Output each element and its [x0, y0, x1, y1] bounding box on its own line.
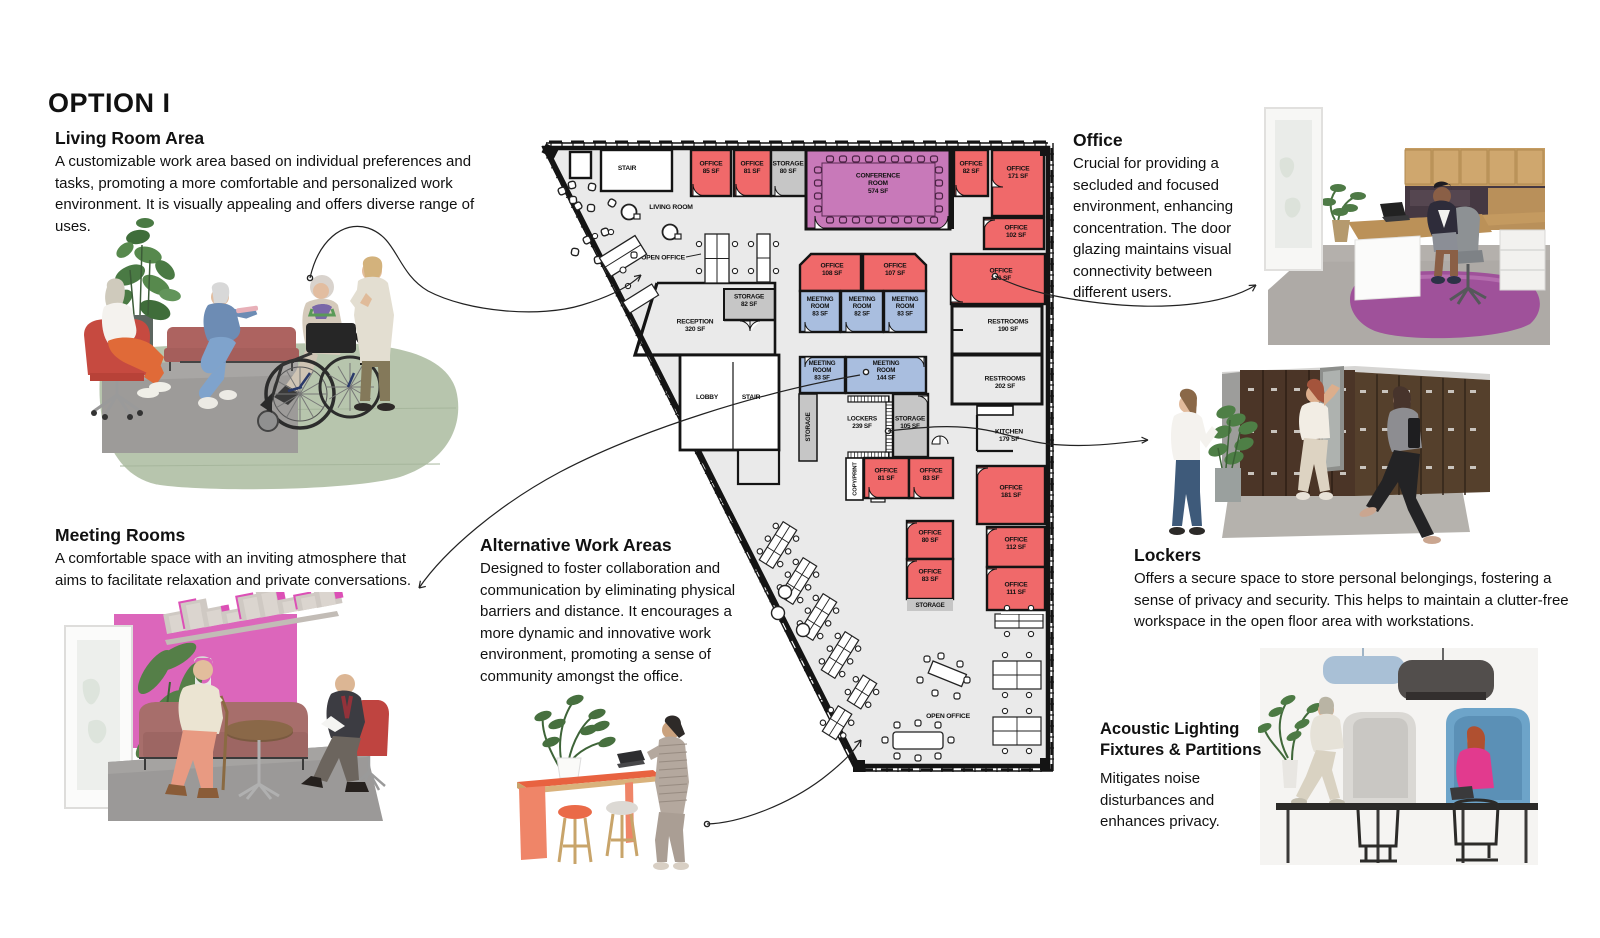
svg-text:RESTROOMS: RESTROOMS — [988, 318, 1029, 325]
svg-text:OFFICE: OFFICE — [919, 529, 943, 536]
svg-text:181 SF: 181 SF — [1001, 492, 1021, 499]
svg-text:171 SF: 171 SF — [1008, 173, 1028, 180]
svg-text:OFFICE: OFFICE — [821, 262, 845, 269]
svg-text:COPY/PRINT: COPY/PRINT — [853, 462, 859, 496]
svg-text:81 SF: 81 SF — [878, 475, 895, 482]
svg-text:202 SF: 202 SF — [995, 383, 1015, 390]
svg-text:ROOM: ROOM — [853, 303, 871, 310]
svg-text:OFFICE: OFFICE — [1005, 536, 1029, 543]
svg-text:83 SF: 83 SF — [923, 475, 940, 482]
svg-text:MEETING: MEETING — [873, 360, 900, 367]
svg-text:320 SF: 320 SF — [685, 326, 705, 333]
svg-text:179 SF: 179 SF — [999, 436, 1019, 443]
svg-text:MEETING: MEETING — [892, 296, 919, 303]
svg-text:102 SF: 102 SF — [1006, 232, 1026, 239]
svg-text:STAIR: STAIR — [742, 394, 761, 401]
svg-text:OFFICE: OFFICE — [1007, 165, 1031, 172]
svg-text:190 SF: 190 SF — [998, 326, 1018, 333]
svg-text:82 SF: 82 SF — [854, 311, 870, 318]
svg-text:MEETING: MEETING — [807, 296, 834, 303]
svg-text:85 SF: 85 SF — [703, 168, 720, 175]
svg-text:108 SF: 108 SF — [822, 270, 842, 277]
svg-text:ROOM: ROOM — [811, 303, 829, 310]
svg-text:82 SF: 82 SF — [741, 301, 757, 308]
svg-text:STORAGE: STORAGE — [772, 160, 804, 167]
svg-text:MEETING: MEETING — [809, 360, 836, 367]
svg-text:OFFICE: OFFICE — [741, 160, 765, 167]
svg-text:OPEN OFFICE: OPEN OFFICE — [926, 713, 971, 720]
svg-text:574 SF: 574 SF — [868, 188, 888, 195]
svg-text:OFFICE: OFFICE — [700, 160, 724, 167]
svg-text:STORAGE: STORAGE — [805, 412, 812, 441]
svg-text:OFFICE: OFFICE — [960, 160, 984, 167]
svg-text:OFFICE: OFFICE — [1005, 581, 1029, 588]
svg-text:144 SF: 144 SF — [877, 375, 896, 382]
svg-text:105 SF: 105 SF — [900, 423, 920, 430]
svg-text:OFFICE: OFFICE — [920, 467, 944, 474]
svg-text:112 SF: 112 SF — [1006, 544, 1026, 551]
svg-text:OFFICE: OFFICE — [990, 267, 1014, 274]
svg-text:RESTROOMS: RESTROOMS — [985, 375, 1026, 382]
svg-text:OFFICE: OFFICE — [919, 568, 943, 575]
svg-text:STORAGE: STORAGE — [734, 293, 765, 300]
svg-text:80 SF: 80 SF — [922, 537, 939, 544]
svg-text:81 SF: 81 SF — [744, 168, 761, 175]
svg-text:CONFERENCE: CONFERENCE — [856, 172, 901, 179]
svg-text:ROOM: ROOM — [877, 367, 895, 374]
svg-text:83 SF: 83 SF — [922, 576, 939, 583]
svg-text:ROOM: ROOM — [896, 303, 914, 310]
svg-text:OFFICE: OFFICE — [1005, 224, 1029, 231]
svg-text:83 SF: 83 SF — [897, 311, 913, 318]
svg-text:LOBBY: LOBBY — [696, 394, 719, 401]
svg-text:83 SF: 83 SF — [814, 375, 830, 382]
svg-text:OPEN OFFICE: OPEN OFFICE — [641, 255, 686, 262]
svg-text:KITCHEN: KITCHEN — [995, 428, 1023, 435]
svg-text:ROOM: ROOM — [813, 367, 831, 374]
svg-text:STORAGE: STORAGE — [895, 415, 926, 422]
svg-text:82 SF: 82 SF — [963, 168, 980, 175]
svg-text:LIVING ROOM: LIVING ROOM — [649, 204, 693, 211]
svg-text:MEETING: MEETING — [849, 296, 876, 303]
svg-text:STORAGE: STORAGE — [915, 602, 944, 609]
svg-text:STAIR: STAIR — [618, 165, 637, 172]
svg-text:ROOM: ROOM — [868, 180, 888, 187]
svg-text:80 SF: 80 SF — [780, 168, 797, 175]
svg-text:226 SF: 226 SF — [991, 275, 1011, 282]
svg-text:OFFICE: OFFICE — [875, 467, 899, 474]
svg-text:OFFICE: OFFICE — [884, 262, 908, 269]
svg-text:239 SF: 239 SF — [852, 423, 872, 430]
svg-text:OFFICE: OFFICE — [1000, 484, 1024, 491]
svg-text:83 SF: 83 SF — [812, 311, 828, 318]
svg-text:RECEPTION: RECEPTION — [677, 318, 714, 325]
svg-text:111 SF: 111 SF — [1006, 589, 1026, 596]
svg-text:107 SF: 107 SF — [885, 270, 905, 277]
svg-text:LOCKERS: LOCKERS — [847, 415, 878, 422]
